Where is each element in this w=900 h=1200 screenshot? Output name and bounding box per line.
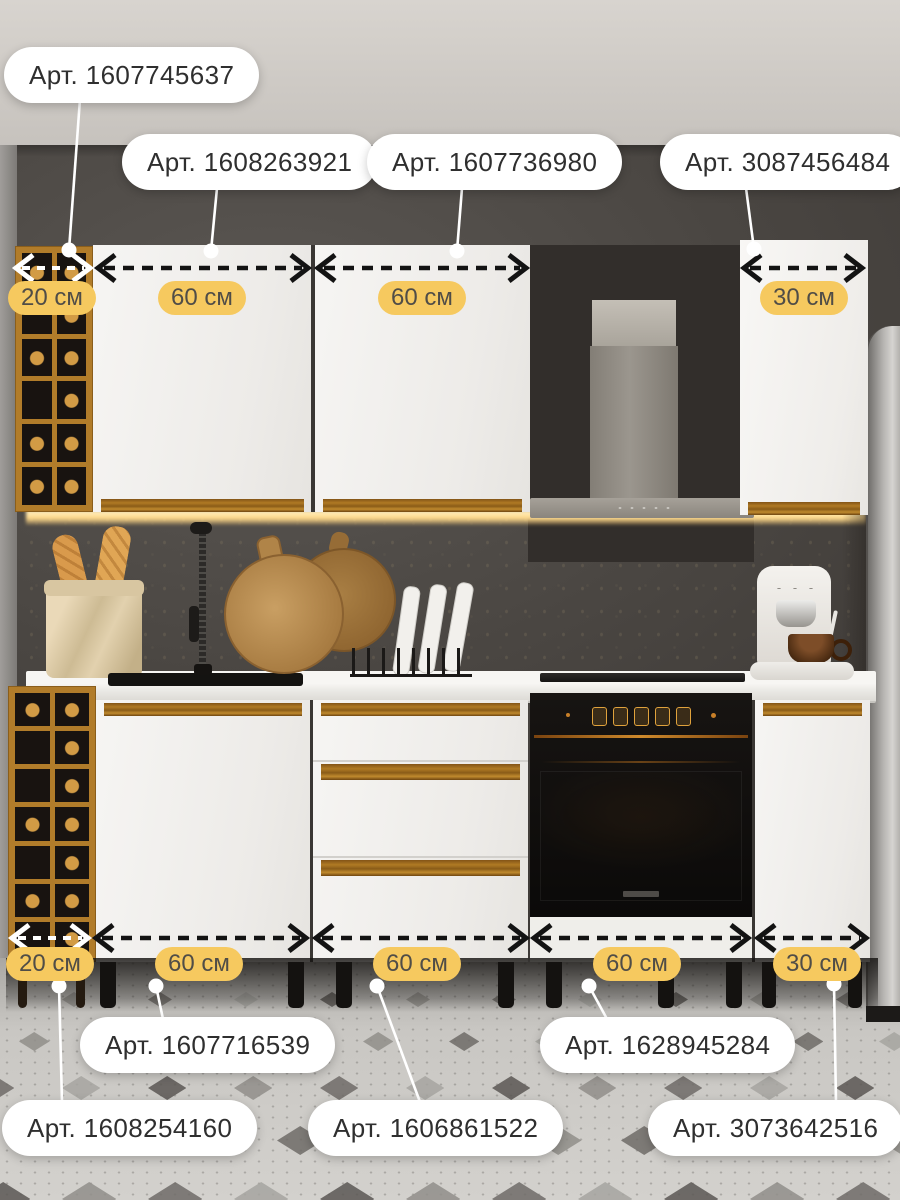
hood-duct-upper [592,300,676,348]
coffee-cup [788,634,834,663]
oven-display-digit [634,707,649,726]
wine-bottle-cell [57,339,87,377]
oven-knob-left [566,713,570,717]
dimension-badge: 60 см [593,947,681,981]
cabinet-leg [288,962,304,1008]
oven-display-digit [676,707,691,726]
dimension-badge: 60 см [378,281,466,315]
hood-controls [614,506,670,510]
wine-bottle-cell [57,424,87,462]
dimension-badge: 20 см [8,281,96,315]
drawer-seam [313,856,528,858]
induction-cooktop [540,673,745,682]
faucet-base [194,664,212,675]
cabinet-handle-strip [104,703,302,716]
oven-display-digit [655,707,670,726]
drawer-seam [313,760,528,762]
cabinet-leg [498,962,514,1008]
wine-cell-empty [22,381,52,419]
oven-accent-line [542,761,740,763]
wine-bottle-cell [15,807,50,840]
cabinet-handle-strip [101,499,304,512]
wine-bottle-cell [55,846,90,879]
drawer-handle-strip [321,860,520,876]
wine-bottle-cell [55,769,90,802]
cabinet-leg [336,962,352,1008]
wine-bottle-cell [55,731,90,764]
dimension-badge: 60 см [155,947,243,981]
article-callout: Арт. 1628945284 [540,1017,795,1073]
cabinet-leg [726,962,742,1008]
article-callout: Арт. 1606861522 [308,1100,563,1156]
oven-display-digit [613,707,628,726]
refrigerator [866,326,900,1014]
wine-bottle-cell [15,884,50,917]
base-cabinet-30 [755,700,870,962]
product-photo-kitchen: Арт. 1607745637 Арт. 1608263921 Арт. 160… [0,0,900,1200]
coffee-machine-tray [750,662,854,680]
cabinet-handle-strip [763,703,862,716]
article-callout: Арт. 1607745637 [4,47,259,103]
wine-bottle-cell [22,467,52,505]
oven-accent-line [534,735,748,738]
oven-brand-mark [623,891,659,897]
article-callout: Арт. 1607716539 [80,1017,335,1073]
wine-bottle-cell [57,467,87,505]
dimension-badge: 60 см [373,947,461,981]
cabinet-handle-strip [323,499,522,512]
cabinet-leg [100,962,116,1008]
wine-bottle-cell [15,693,50,726]
base-cabinet-60-drawers [313,700,528,962]
dish-rack [352,648,470,674]
wine-bottle-cell [55,693,90,726]
coffee-machine-group-head [776,600,816,627]
coffee-machine-buttons [771,586,817,591]
paper-bag-fold [44,580,144,596]
dimension-badge: 60 см [158,281,246,315]
dimension-badge: 30 см [773,947,861,981]
article-callout: Арт. 3087456484 [660,134,900,190]
wine-bottle-cell [55,807,90,840]
article-callout: Арт. 3073642516 [648,1100,900,1156]
built-in-oven [530,693,752,917]
article-callout: Арт. 1608263921 [122,134,377,190]
faucet [199,528,206,674]
article-callout: Арт. 1608254160 [2,1100,257,1156]
drawer-handle-strip [321,703,520,716]
oven-display-digit [592,707,607,726]
wine-bottle-cell [55,884,90,917]
article-callout: Арт. 1607736980 [367,134,622,190]
drawer-handle-strip [321,764,520,780]
cutting-board-front [224,554,344,674]
wine-bottle-cell [22,424,52,462]
cabinet-handle-strip [748,502,860,515]
dish-rack-base [350,674,472,677]
wine-cell-empty [15,731,50,764]
faucet-top [190,522,212,534]
oven-door-glass [540,771,742,901]
wine-cell-empty [15,846,50,879]
wine-cell-empty [15,769,50,802]
faucet-spout [189,606,199,642]
oven-knob-right [711,713,716,718]
hood-canopy [530,498,754,518]
dimension-badge: 30 см [760,281,848,315]
cabinet-leg [546,962,562,1008]
wine-bottle-cell [22,339,52,377]
hood-duct [590,346,678,502]
wine-rack-lower [8,686,96,962]
wine-bottle-cell [57,381,87,419]
paper-bread-bag [46,584,142,678]
dimension-badge: 20 см [6,947,94,981]
base-cabinet-60-door [96,700,310,962]
